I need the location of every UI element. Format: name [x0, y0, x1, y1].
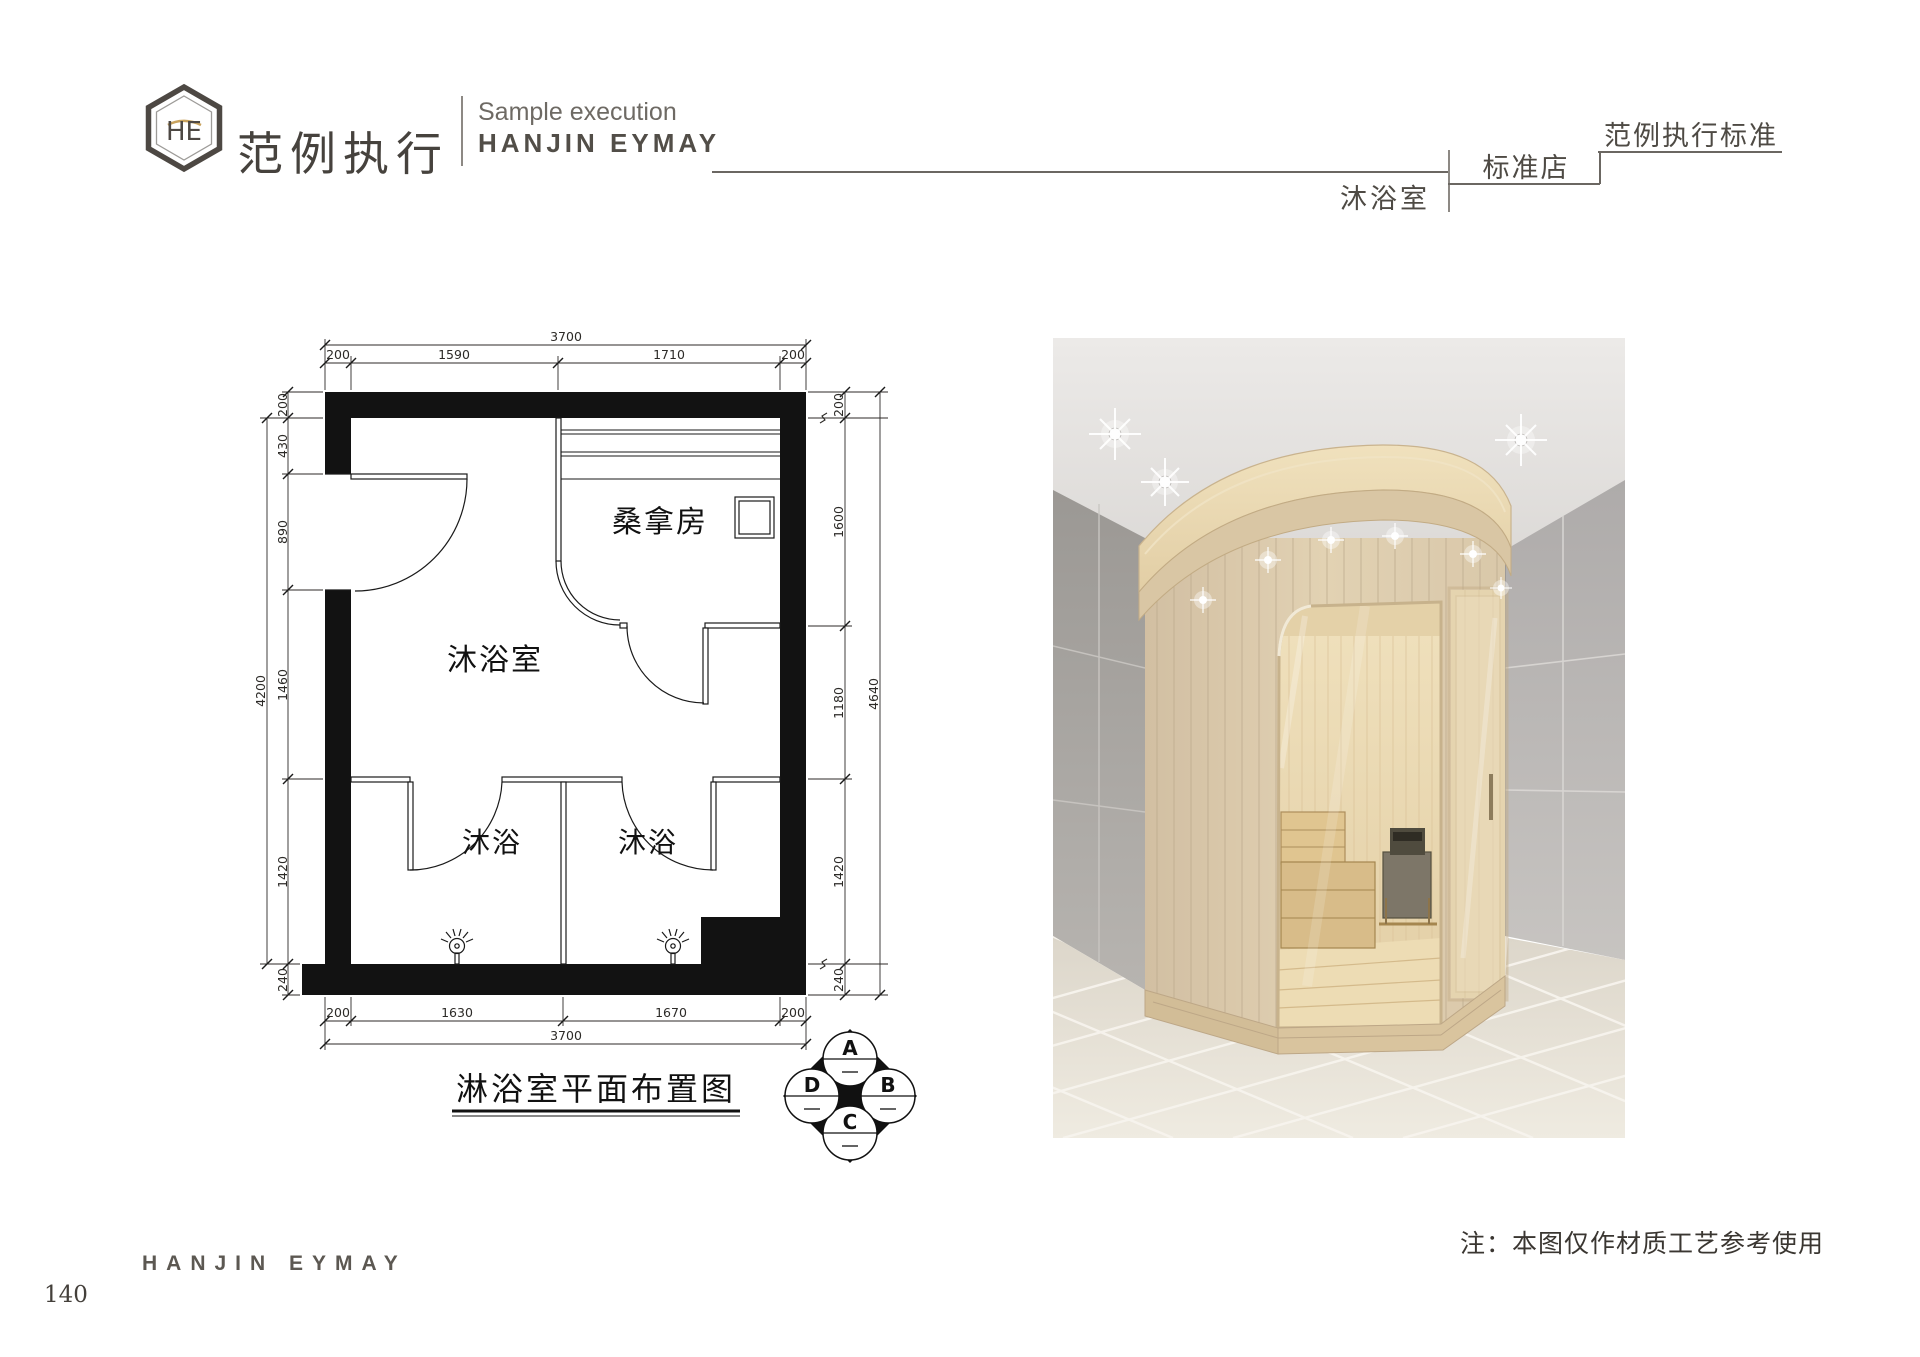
marker-letter-a: A [842, 1036, 858, 1060]
page-number: 140 [44, 1282, 88, 1308]
dim-top-1: 1590 [438, 347, 470, 362]
header-room-label: 沐浴室 [1240, 177, 1430, 216]
dim-right-1: 1600 [831, 506, 846, 538]
dim-bottom-1: 1630 [441, 1005, 473, 1020]
page: { "header": { "brand_cn": "范例执行", "brand… [0, 0, 1920, 1357]
marker-letter-d: D [804, 1073, 821, 1097]
elevation-marker: A B C D [783, 1029, 917, 1163]
marker-letter-b: B [880, 1073, 895, 1097]
dim-bottom-total: 3700 [550, 1028, 582, 1043]
dim-left-5: 240 [275, 968, 290, 992]
standard-underline [1598, 151, 1782, 153]
dim-top-0: 200 [326, 347, 350, 362]
sauna-render-photo [1053, 338, 1625, 1138]
dim-top-2: 1710 [653, 347, 685, 362]
store-underline [1448, 183, 1600, 185]
floor-plan-drawing: 桑拿房 沐浴室 沐浴 沐浴 [240, 260, 980, 1180]
entry-door [325, 474, 467, 591]
dim-bottom-3: 200 [781, 1005, 805, 1020]
plan-title-text: 淋浴室平面布置图 [456, 1070, 736, 1108]
door-handle [1489, 774, 1493, 820]
logo-monogram: HE [166, 117, 202, 147]
sauna-heater [735, 497, 774, 538]
brand-name-en: HANJIN EYMAY [478, 128, 720, 159]
sauna-interior [1278, 602, 1441, 1028]
dim-right-4: 240 [831, 968, 846, 992]
header-store-type: 标准店 [1456, 146, 1596, 185]
brand-subtitle: Sample execution [478, 98, 677, 127]
header-standard-label: 范例执行标准 [1600, 114, 1782, 153]
dim-top-3: 200 [781, 347, 805, 362]
room-label-sauna: 桑拿房 [612, 505, 708, 540]
sauna-door [627, 626, 708, 704]
dim-bottom-0: 200 [326, 1005, 350, 1020]
photo-left-wall [1053, 490, 1145, 990]
dim-left-2: 890 [275, 520, 290, 544]
room-label-stall-left: 沐浴 [462, 826, 522, 859]
photo-right-wall [1505, 480, 1625, 960]
plan-title: 淋浴室平面布置图 [452, 1070, 740, 1116]
marker-letter-c: C [843, 1110, 858, 1134]
room-label-main: 沐浴室 [447, 643, 543, 678]
sauna-glass-door [1449, 588, 1507, 1000]
dim-top-total: 3700 [550, 329, 582, 344]
dim-left-3: 1460 [275, 669, 290, 701]
dim-right-0: 200 [831, 393, 846, 417]
dim-left-0: 200 [275, 393, 290, 417]
brand-logo-icon: HE [138, 82, 230, 174]
header-rule [712, 171, 1448, 173]
header-vertical-divider [1448, 150, 1450, 212]
room-label-stall-right: 沐浴 [618, 826, 678, 859]
footer-brand: HANJIN EYMAY [142, 1252, 407, 1276]
sauna-bench-lines [561, 430, 780, 479]
dim-bottom-2: 1670 [655, 1005, 687, 1020]
dim-right-2: 1180 [831, 687, 846, 719]
plan-walls [302, 392, 806, 995]
dim-left-total: 4200 [253, 675, 268, 707]
dim-left-4: 1420 [275, 856, 290, 888]
header-step-line [1599, 151, 1601, 184]
header-divider-line [461, 96, 463, 166]
dim-left-1: 430 [275, 434, 290, 458]
reference-note: 注：本图仅作材质工艺参考使用 [1460, 1224, 1824, 1260]
dim-right-total: 4640 [866, 678, 881, 710]
dim-right-3: 1420 [831, 856, 846, 888]
brand-name-cn: 范例执行 [237, 118, 449, 184]
